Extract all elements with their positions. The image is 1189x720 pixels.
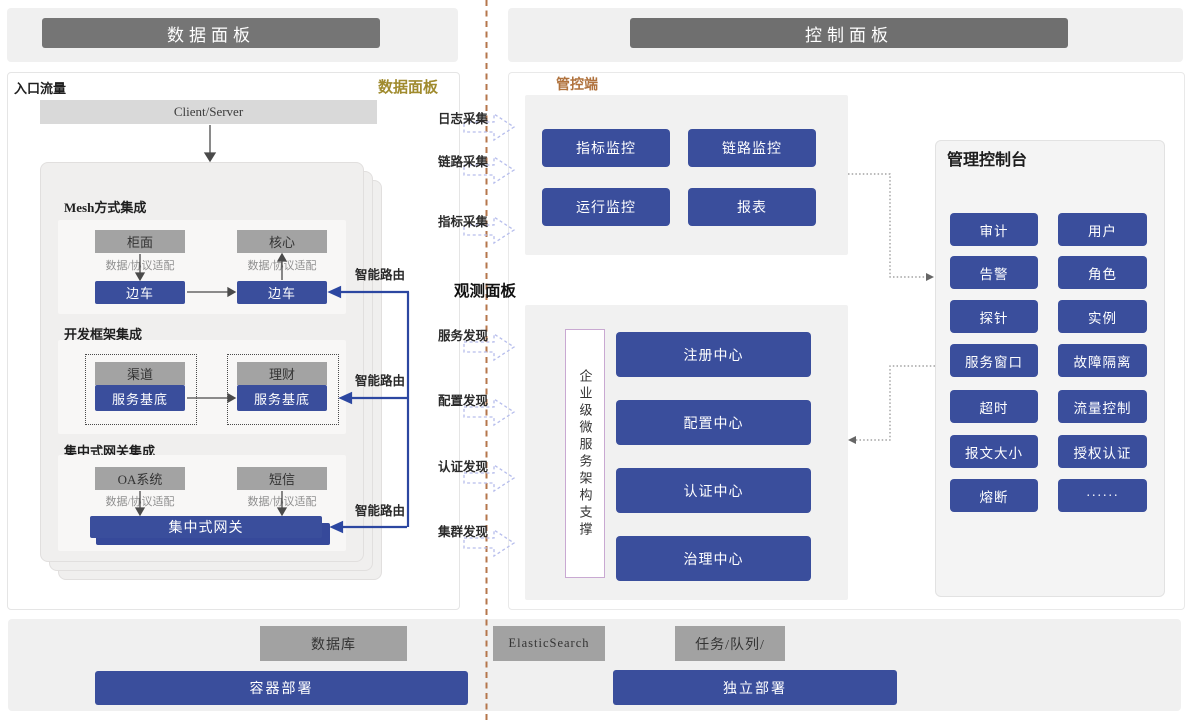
service-base-right: 服务基底 [237,385,327,411]
auth-discover-label: 认证发现 [424,456,488,475]
management-console-title: 管理控制台 [947,146,1027,170]
console-button-alert: 告警 [950,256,1038,289]
service-discover-label: 服务发现 [424,325,488,344]
metric-monitor-button: 指标监控 [542,129,670,167]
config-discover-label: 配置发现 [424,390,488,409]
console-button-user: 用户 [1058,213,1147,246]
adapter-label-gw-left: 数据/协议适配 [95,493,185,509]
observe-panel-label: 观测面板 [454,279,516,301]
console-button-role: 角色 [1058,256,1147,289]
mesh-section-title: Mesh方式集成 [64,197,146,216]
console-button-flow-control: 流量控制 [1058,390,1147,423]
console-button-fault-isolation: 故障隔离 [1058,344,1147,377]
smart-route-label-1: 智能路由 [350,264,410,283]
console-button-message-size: 报文大小 [950,435,1038,468]
container-deploy-bar: 容器部署 [95,671,468,705]
console-button-more: ······ [1058,479,1147,512]
trace-monitor-button: 链路监控 [688,129,816,167]
node-licai: 理财 [237,362,327,385]
control-side-label: 管控端 [556,74,598,94]
smart-route-label-3: 智能路由 [350,500,410,519]
microservice-support-box: 企业级微服务架构支撑 [565,329,605,578]
cluster-discover-label: 集群发现 [424,521,488,540]
trace-collect-label: 链路采集 [424,151,488,170]
report-button: 报表 [688,188,816,226]
console-button-circuit-break: 熔断 [950,479,1038,512]
elasticsearch-bar: ElasticSearch [493,626,605,661]
service-base-left: 服务基底 [95,385,185,411]
console-button-service-window: 服务窗口 [950,344,1038,377]
metric-collect-label: 指标采集 [424,211,488,230]
adapter-label-mesh-right: 数据/协议适配 [237,257,327,273]
auth-center-bar: 认证中心 [616,468,811,513]
node-hexin: 核心 [237,230,327,253]
runtime-monitor-button: 运行监控 [542,188,670,226]
adapter-label-mesh-left: 数据/协议适配 [95,257,185,273]
console-button-probe: 探针 [950,300,1038,333]
console-button-authz: 授权认证 [1058,435,1147,468]
sidecar-right: 边车 [237,281,327,304]
client-server-bar: Client/Server [40,100,377,124]
log-collect-label: 日志采集 [424,108,488,127]
node-oa-system: OA系统 [95,467,185,490]
console-button-audit: 审计 [950,213,1038,246]
ingress-traffic-label: 入口流量 [14,78,66,97]
data-plane-corner-label: 数据面板 [358,76,438,97]
monitor-panel [525,95,848,255]
node-sms: 短信 [237,467,327,490]
node-qudao: 渠道 [95,362,185,385]
architecture-diagram: 数据面板 控制面板 入口流量 数据面板 Client/Server Mesh方式… [0,0,1189,720]
standalone-deploy-bar: 独立部署 [613,670,897,705]
config-center-bar: 配置中心 [616,400,811,445]
console-button-timeout: 超时 [950,390,1038,423]
control-plane-header: 控制面板 [630,18,1068,48]
central-gateway-bar: 集中式网关 [90,516,322,538]
adapter-label-gw-right: 数据/协议适配 [237,493,327,509]
governance-center-bar: 治理中心 [616,536,811,581]
task-queue-bar: 任务/队列/ [675,626,785,661]
node-guimian: 柜面 [95,230,185,253]
smart-route-label-2: 智能路由 [350,370,410,389]
registry-center-bar: 注册中心 [616,332,811,377]
console-button-instance: 实例 [1058,300,1147,333]
database-bar: 数据库 [260,626,407,661]
data-plane-header: 数据面板 [42,18,380,48]
sidecar-left: 边车 [95,281,185,304]
